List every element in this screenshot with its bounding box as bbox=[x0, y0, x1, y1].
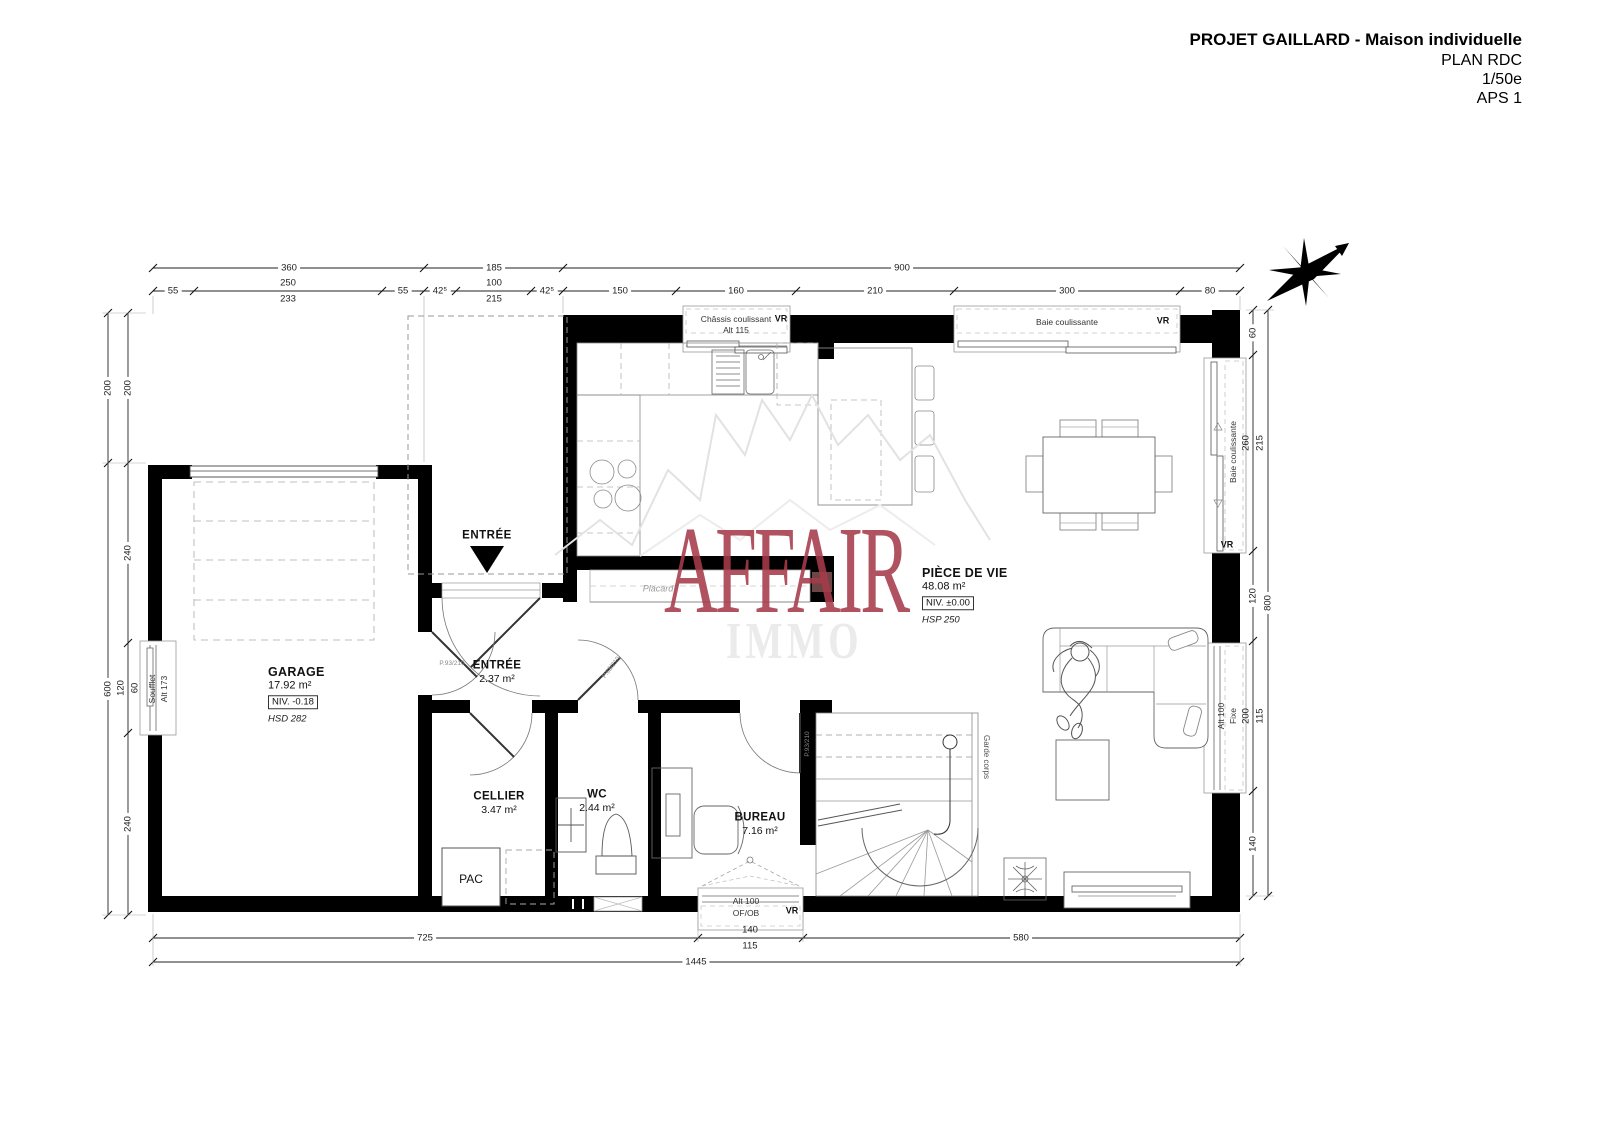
pac-label: PAC bbox=[459, 873, 483, 885]
cooktop bbox=[590, 460, 641, 511]
room-name-entree: ENTRÉE bbox=[473, 660, 521, 672]
plant bbox=[1004, 858, 1046, 900]
room-height-garage: HSD 282 bbox=[268, 714, 307, 724]
kitchen-island bbox=[818, 348, 912, 505]
bar-stools bbox=[915, 366, 934, 492]
dim-label: 580 bbox=[1010, 933, 1032, 943]
dim-label: 60 bbox=[1248, 325, 1258, 342]
garage-door bbox=[190, 466, 378, 640]
bureau-furniture bbox=[652, 768, 744, 858]
dim-label: 260 bbox=[1241, 435, 1251, 451]
room-name-cellier: CELLIER bbox=[473, 791, 524, 803]
dim-label: 200 bbox=[123, 377, 133, 399]
dim-label: 120 bbox=[116, 680, 126, 696]
window-label-fixe-type: Fixe bbox=[1229, 708, 1238, 724]
dim-label: 150 bbox=[609, 286, 631, 296]
dim-label: 240 bbox=[123, 542, 133, 564]
window-label-ofob-alt: Alt 100 bbox=[733, 897, 759, 906]
room-area-bureau: 7.16 m² bbox=[742, 826, 778, 837]
toilet-bowl bbox=[602, 814, 632, 856]
stairs bbox=[816, 713, 978, 896]
dim-label: 185 bbox=[483, 263, 505, 273]
project-title: PROJET GAILLARD - Maison individuelle bbox=[1190, 30, 1522, 50]
dim-label: 80 bbox=[1202, 286, 1219, 296]
room-name-bureau: BUREAU bbox=[735, 812, 786, 824]
room-name-wc: WC bbox=[587, 789, 607, 801]
wc-fixtures bbox=[556, 798, 642, 911]
room-area-piece-de-vie: 48.08 m² bbox=[922, 582, 965, 593]
dim-label: 1445 bbox=[682, 957, 709, 967]
dim-label: 725 bbox=[414, 933, 436, 943]
dim-label: 215 bbox=[1255, 435, 1265, 451]
dim-label: 140 bbox=[1248, 833, 1258, 855]
window-label-baie-right: Baie coulissante bbox=[1229, 421, 1238, 483]
dim-label: 160 bbox=[725, 286, 747, 296]
dim-label: 300 bbox=[1056, 286, 1078, 296]
shutter-label-vr: VR bbox=[1157, 317, 1170, 326]
dim-label: 100 bbox=[486, 278, 502, 288]
dim-label: 600 bbox=[103, 678, 113, 700]
dim-label: 200 bbox=[1241, 708, 1251, 724]
window-label-baie-top: Baie coulissante bbox=[1036, 318, 1098, 327]
shutter-label-vr: VR bbox=[1221, 541, 1234, 550]
tv-bench bbox=[1064, 872, 1190, 908]
guardrail-label: Garde corps bbox=[982, 735, 990, 779]
plan-phase: APS 1 bbox=[1190, 90, 1522, 108]
dim-label: 250 bbox=[280, 278, 296, 288]
dim-label: 233 bbox=[280, 294, 296, 304]
dim-label: 210 bbox=[864, 286, 886, 296]
title-block: PROJET GAILLARD - Maison individuelle PL… bbox=[1190, 30, 1522, 108]
room-area-garage: 17.92 m² bbox=[268, 681, 311, 692]
dim-label: 360 bbox=[278, 263, 300, 273]
entrance-arrow bbox=[470, 546, 504, 573]
entrance-arrow-label: ENTRÉE bbox=[462, 530, 512, 542]
dim-label: 115 bbox=[742, 941, 757, 951]
dim-label: 900 bbox=[891, 263, 913, 273]
shutter-label-vr: VR bbox=[775, 315, 788, 324]
room-height-piece-de-vie: HSP 250 bbox=[922, 615, 960, 625]
watermark-sub: IMMO bbox=[726, 612, 863, 671]
dim-label: 55 bbox=[165, 286, 182, 296]
dining-set bbox=[1026, 420, 1172, 530]
room-level-piece-de-vie: NIV. ±0.00 bbox=[922, 596, 974, 610]
kitchen-sink bbox=[712, 350, 774, 394]
coffee-table bbox=[1056, 740, 1109, 800]
room-area-wc: 2.44 m² bbox=[579, 803, 615, 814]
window-label-chassis-alt: Alt 115 bbox=[723, 326, 749, 335]
dim-label: 140 bbox=[742, 925, 758, 935]
placard-label: Placard bbox=[643, 585, 674, 594]
dim-label: 200 bbox=[103, 377, 113, 399]
room-level-garage: NIV. -0.18 bbox=[268, 695, 318, 709]
room-name-garage: GARAGE bbox=[268, 666, 325, 679]
monitor bbox=[666, 794, 680, 836]
plan-name: PLAN RDC bbox=[1190, 52, 1522, 70]
floor-plan-sheet: AFFAIR IMMO PROJET GAILLARD - Maison ind… bbox=[0, 0, 1600, 1131]
desk-chair bbox=[694, 806, 738, 854]
dim-label: 55 bbox=[395, 286, 412, 296]
window-label-chassis: Châssis coulissant bbox=[701, 315, 771, 324]
room-area-entree: 2.37 m² bbox=[479, 674, 515, 685]
door-size-label: P.93/210 bbox=[439, 661, 464, 668]
window-label-soufflet-alt: Alt 173 bbox=[160, 676, 169, 702]
plan-scale: 1/50e bbox=[1190, 71, 1522, 89]
door-size-label: P.93/210 bbox=[805, 731, 812, 756]
room-name-piece-de-vie: PIÈCE DE VIE bbox=[922, 567, 1008, 580]
dim-label: 240 bbox=[123, 813, 133, 835]
room-area-cellier: 3.47 m² bbox=[481, 805, 517, 816]
window-label-fixe: Alt 100 bbox=[1217, 703, 1226, 729]
dim-label: 120 bbox=[1248, 585, 1258, 607]
window-label-soufflet: Soufflet bbox=[148, 675, 157, 704]
dim-label: 42⁵ bbox=[537, 286, 558, 296]
dim-label: 42⁵ bbox=[430, 286, 451, 296]
dim-label: 115 bbox=[1255, 708, 1265, 723]
window-label-ofob-type: OF/OB bbox=[733, 909, 759, 918]
shutter-label-vr: VR bbox=[786, 907, 799, 916]
north-compass-icon bbox=[1267, 238, 1349, 306]
dim-label: 800 bbox=[1263, 592, 1273, 614]
toilet-tank bbox=[596, 856, 636, 874]
dim-label: 215 bbox=[486, 294, 502, 304]
dining-table bbox=[1043, 437, 1155, 513]
dim-label: 60 bbox=[130, 683, 140, 694]
